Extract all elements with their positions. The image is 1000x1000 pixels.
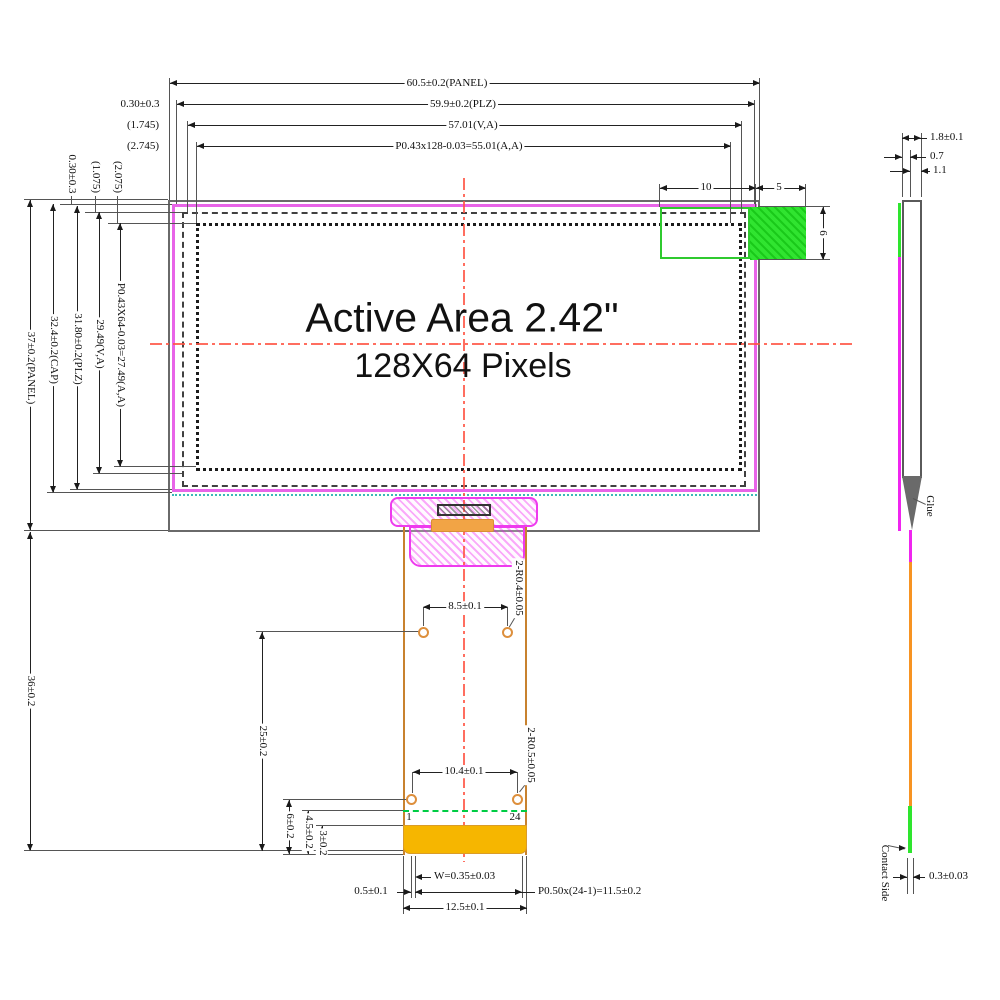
ext-line xyxy=(411,856,412,898)
ext-line xyxy=(70,489,172,490)
arrowhead xyxy=(413,769,420,775)
dim-panel-height: 37±0.2(PANEL) xyxy=(24,330,36,407)
dim-pitch-total: P0.50x(24-1)=11.5±0.2 xyxy=(536,886,643,898)
connector-bottom-block xyxy=(409,526,525,567)
arrowhead xyxy=(177,101,184,107)
ext-line xyxy=(730,142,731,223)
ext-line xyxy=(316,825,403,826)
dim-top-holes-radius: 2-R0.4±0.05 xyxy=(512,558,524,618)
arrowhead xyxy=(902,135,909,141)
dim-aa-offset-v: (2.075) xyxy=(111,159,123,195)
active-area-title: Active Area 2.42" xyxy=(305,298,618,339)
pin-number-last: 24 xyxy=(508,812,523,824)
leader-line xyxy=(522,892,535,893)
dim-edge-margin: 0.5±0.1 xyxy=(352,886,390,898)
dim-va-offset-v: (1.075) xyxy=(89,159,101,195)
dim-contact-length: 3±0.2 xyxy=(316,828,328,857)
dim-active-area-height: P0.43X64-0.03=27.49(A,A) xyxy=(114,281,126,409)
arrowhead xyxy=(510,769,517,775)
dim-tape-height: 6 xyxy=(816,228,828,238)
arrowhead xyxy=(753,80,760,86)
dim-fpc-width: 12.5±0.1 xyxy=(443,902,486,914)
ext-line xyxy=(24,850,403,851)
arrowhead xyxy=(50,486,56,493)
glue-label: Glue xyxy=(923,493,935,518)
dim-cap-height: 32.4±0.2(CAP) xyxy=(47,314,59,386)
arrowhead xyxy=(501,604,508,610)
contact-side-label: Contact Side xyxy=(878,843,890,904)
arrowhead xyxy=(899,845,906,851)
arrowhead xyxy=(27,523,33,530)
arrowhead xyxy=(921,168,928,174)
ext-line xyxy=(60,204,172,205)
arrowhead xyxy=(748,101,755,107)
dim-viewing-area-width: 57.01(V,A) xyxy=(446,120,499,132)
arrowhead xyxy=(74,206,80,213)
arrowhead xyxy=(27,844,33,851)
arrowhead xyxy=(259,844,265,851)
dim-module-length: 36±0.2 xyxy=(24,674,36,709)
gold-contact-pad xyxy=(403,825,527,854)
side-view-polarizer-strip xyxy=(898,257,901,531)
dim-tape-inset: 10 xyxy=(699,182,714,194)
arrowhead xyxy=(403,905,410,911)
arrowhead xyxy=(415,889,422,895)
side-view-contact-green xyxy=(908,806,912,853)
dim-finger-width: W=0.35±0.03 xyxy=(432,871,497,883)
arrowhead xyxy=(895,154,902,160)
ext-line xyxy=(302,810,403,811)
dim-polarizer-height: 31.80±0.2(PLZ) xyxy=(71,311,83,386)
arrowhead xyxy=(914,135,921,141)
dim-pin-row-to-edge: 4.5±0.2 xyxy=(302,813,314,851)
ext-line xyxy=(741,121,742,212)
dim-holes-spacing: 25±0.2 xyxy=(256,724,268,759)
arrowhead xyxy=(756,185,763,191)
arrowhead xyxy=(515,889,522,895)
arrowhead xyxy=(117,460,123,467)
arrowhead xyxy=(660,185,667,191)
arrowhead xyxy=(749,185,756,191)
arrowhead xyxy=(735,122,742,128)
side-view-fpc-magenta xyxy=(909,530,912,562)
ext-line xyxy=(196,142,197,223)
oled-dimension-drawing: Active Area 2.42" 128X64 Pixels 1 24 60.… xyxy=(0,0,1000,1000)
dim-polarizer-offset-v: 0.30±0.3 xyxy=(65,152,77,195)
ext-line xyxy=(117,196,118,224)
arrowhead xyxy=(820,207,826,214)
pin-number-first: 1 xyxy=(404,812,414,824)
hole-top-right xyxy=(502,627,513,638)
tape-solid-green xyxy=(750,207,806,260)
arrowhead xyxy=(50,204,56,211)
ext-line xyxy=(283,854,403,855)
ext-line xyxy=(93,473,182,474)
ext-line xyxy=(47,492,172,493)
side-view-glass-body xyxy=(902,200,922,478)
arrowhead xyxy=(903,168,910,174)
tape-zone-outline xyxy=(660,207,750,259)
ext-line xyxy=(921,133,922,197)
ext-line xyxy=(412,772,413,793)
fpc-band-outline xyxy=(403,527,527,855)
arrowhead xyxy=(404,889,411,895)
ext-line xyxy=(24,530,168,531)
arrowhead xyxy=(96,467,102,474)
arrowhead xyxy=(913,874,920,880)
connector-orange-bar xyxy=(431,519,494,532)
dim-polarizer-width: 59.9±0.2(PLZ) xyxy=(428,99,498,111)
arrowhead xyxy=(259,632,265,639)
arrowhead xyxy=(117,223,123,230)
ext-line xyxy=(187,121,188,212)
dim-thickness-glass: 1.1 xyxy=(931,165,949,177)
ext-line xyxy=(902,133,903,197)
horizontal-centerline xyxy=(150,343,852,345)
arrowhead xyxy=(799,185,806,191)
arrowhead xyxy=(27,200,33,207)
hole-bottom-right xyxy=(512,794,523,805)
arrowhead xyxy=(415,874,422,880)
ext-line xyxy=(176,100,177,204)
ext-line xyxy=(114,466,196,467)
pixel-count-title: 128X64 Pixels xyxy=(354,349,571,383)
ext-line xyxy=(24,199,168,200)
dim-viewing-area-height: 29.49(V,A) xyxy=(93,317,105,370)
dim-va-offset-h: (1.745) xyxy=(125,120,161,132)
arrowhead xyxy=(520,905,527,911)
arrowhead xyxy=(820,253,826,260)
driver-ic-block xyxy=(437,504,491,516)
arrowhead xyxy=(724,143,731,149)
ext-line xyxy=(759,78,760,200)
dim-thickness-panel: 0.7 xyxy=(928,151,946,163)
side-view-tape-strip xyxy=(898,203,901,257)
arrowhead xyxy=(188,122,195,128)
dim-aa-offset-h: (2.745) xyxy=(125,141,161,153)
dim-active-area-width: P0.43x128-0.03=55.01(A,A) xyxy=(393,141,524,153)
arrowhead xyxy=(170,80,177,86)
dim-panel-width: 60.5±0.2(PANEL) xyxy=(405,78,490,90)
arrowhead xyxy=(286,800,292,807)
hole-bottom-left xyxy=(406,794,417,805)
ext-line xyxy=(169,78,170,200)
dim-bottom-holes-radius: 2-R0.5±0.05 xyxy=(524,725,536,785)
arrowhead xyxy=(27,532,33,539)
hole-top-left xyxy=(418,627,429,638)
ext-line xyxy=(283,799,410,800)
dim-top-holes-pitch: 8.5±0.1 xyxy=(446,601,484,613)
arrowhead xyxy=(900,874,907,880)
dim-bottom-holes-pitch: 10.4±0.1 xyxy=(442,766,485,778)
arrowhead xyxy=(286,847,292,854)
dim-hole-to-edge: 6±0.2 xyxy=(283,811,295,840)
side-view-glue-taper xyxy=(902,476,922,530)
dim-thickness-total: 1.8±0.1 xyxy=(928,132,966,144)
leader-line xyxy=(921,138,927,139)
side-view-fpc-orange xyxy=(909,562,912,806)
ext-line xyxy=(517,772,518,793)
ext-line xyxy=(256,631,420,632)
dim-fpc-thickness: 0.3±0.03 xyxy=(927,871,970,883)
arrowhead xyxy=(96,212,102,219)
arrowhead xyxy=(910,154,917,160)
dim-polarizer-offset-h: 0.30±0.3 xyxy=(118,99,161,111)
ext-line xyxy=(907,858,908,894)
dim-tape-width: 5 xyxy=(774,182,784,194)
arrowhead xyxy=(74,483,80,490)
arrowhead xyxy=(423,604,430,610)
dim-line xyxy=(415,892,522,893)
arrowhead xyxy=(197,143,204,149)
